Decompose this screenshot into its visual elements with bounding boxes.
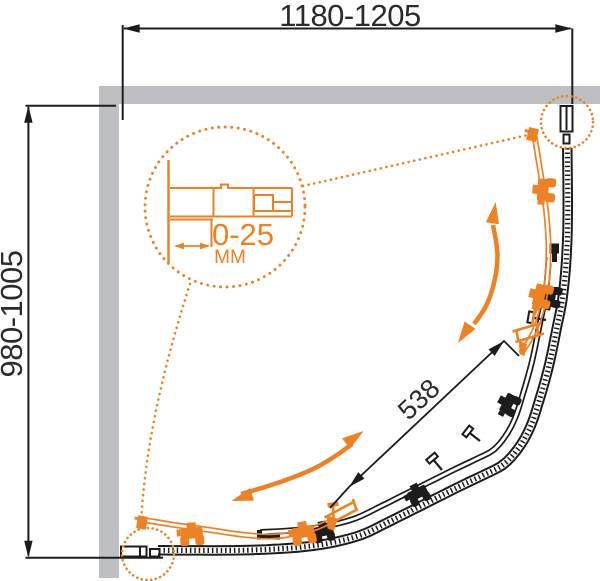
svg-text:MM: MM bbox=[214, 247, 246, 268]
svg-text:980-1005: 980-1005 bbox=[0, 250, 29, 377]
svg-text:1180-1205: 1180-1205 bbox=[279, 0, 420, 33]
